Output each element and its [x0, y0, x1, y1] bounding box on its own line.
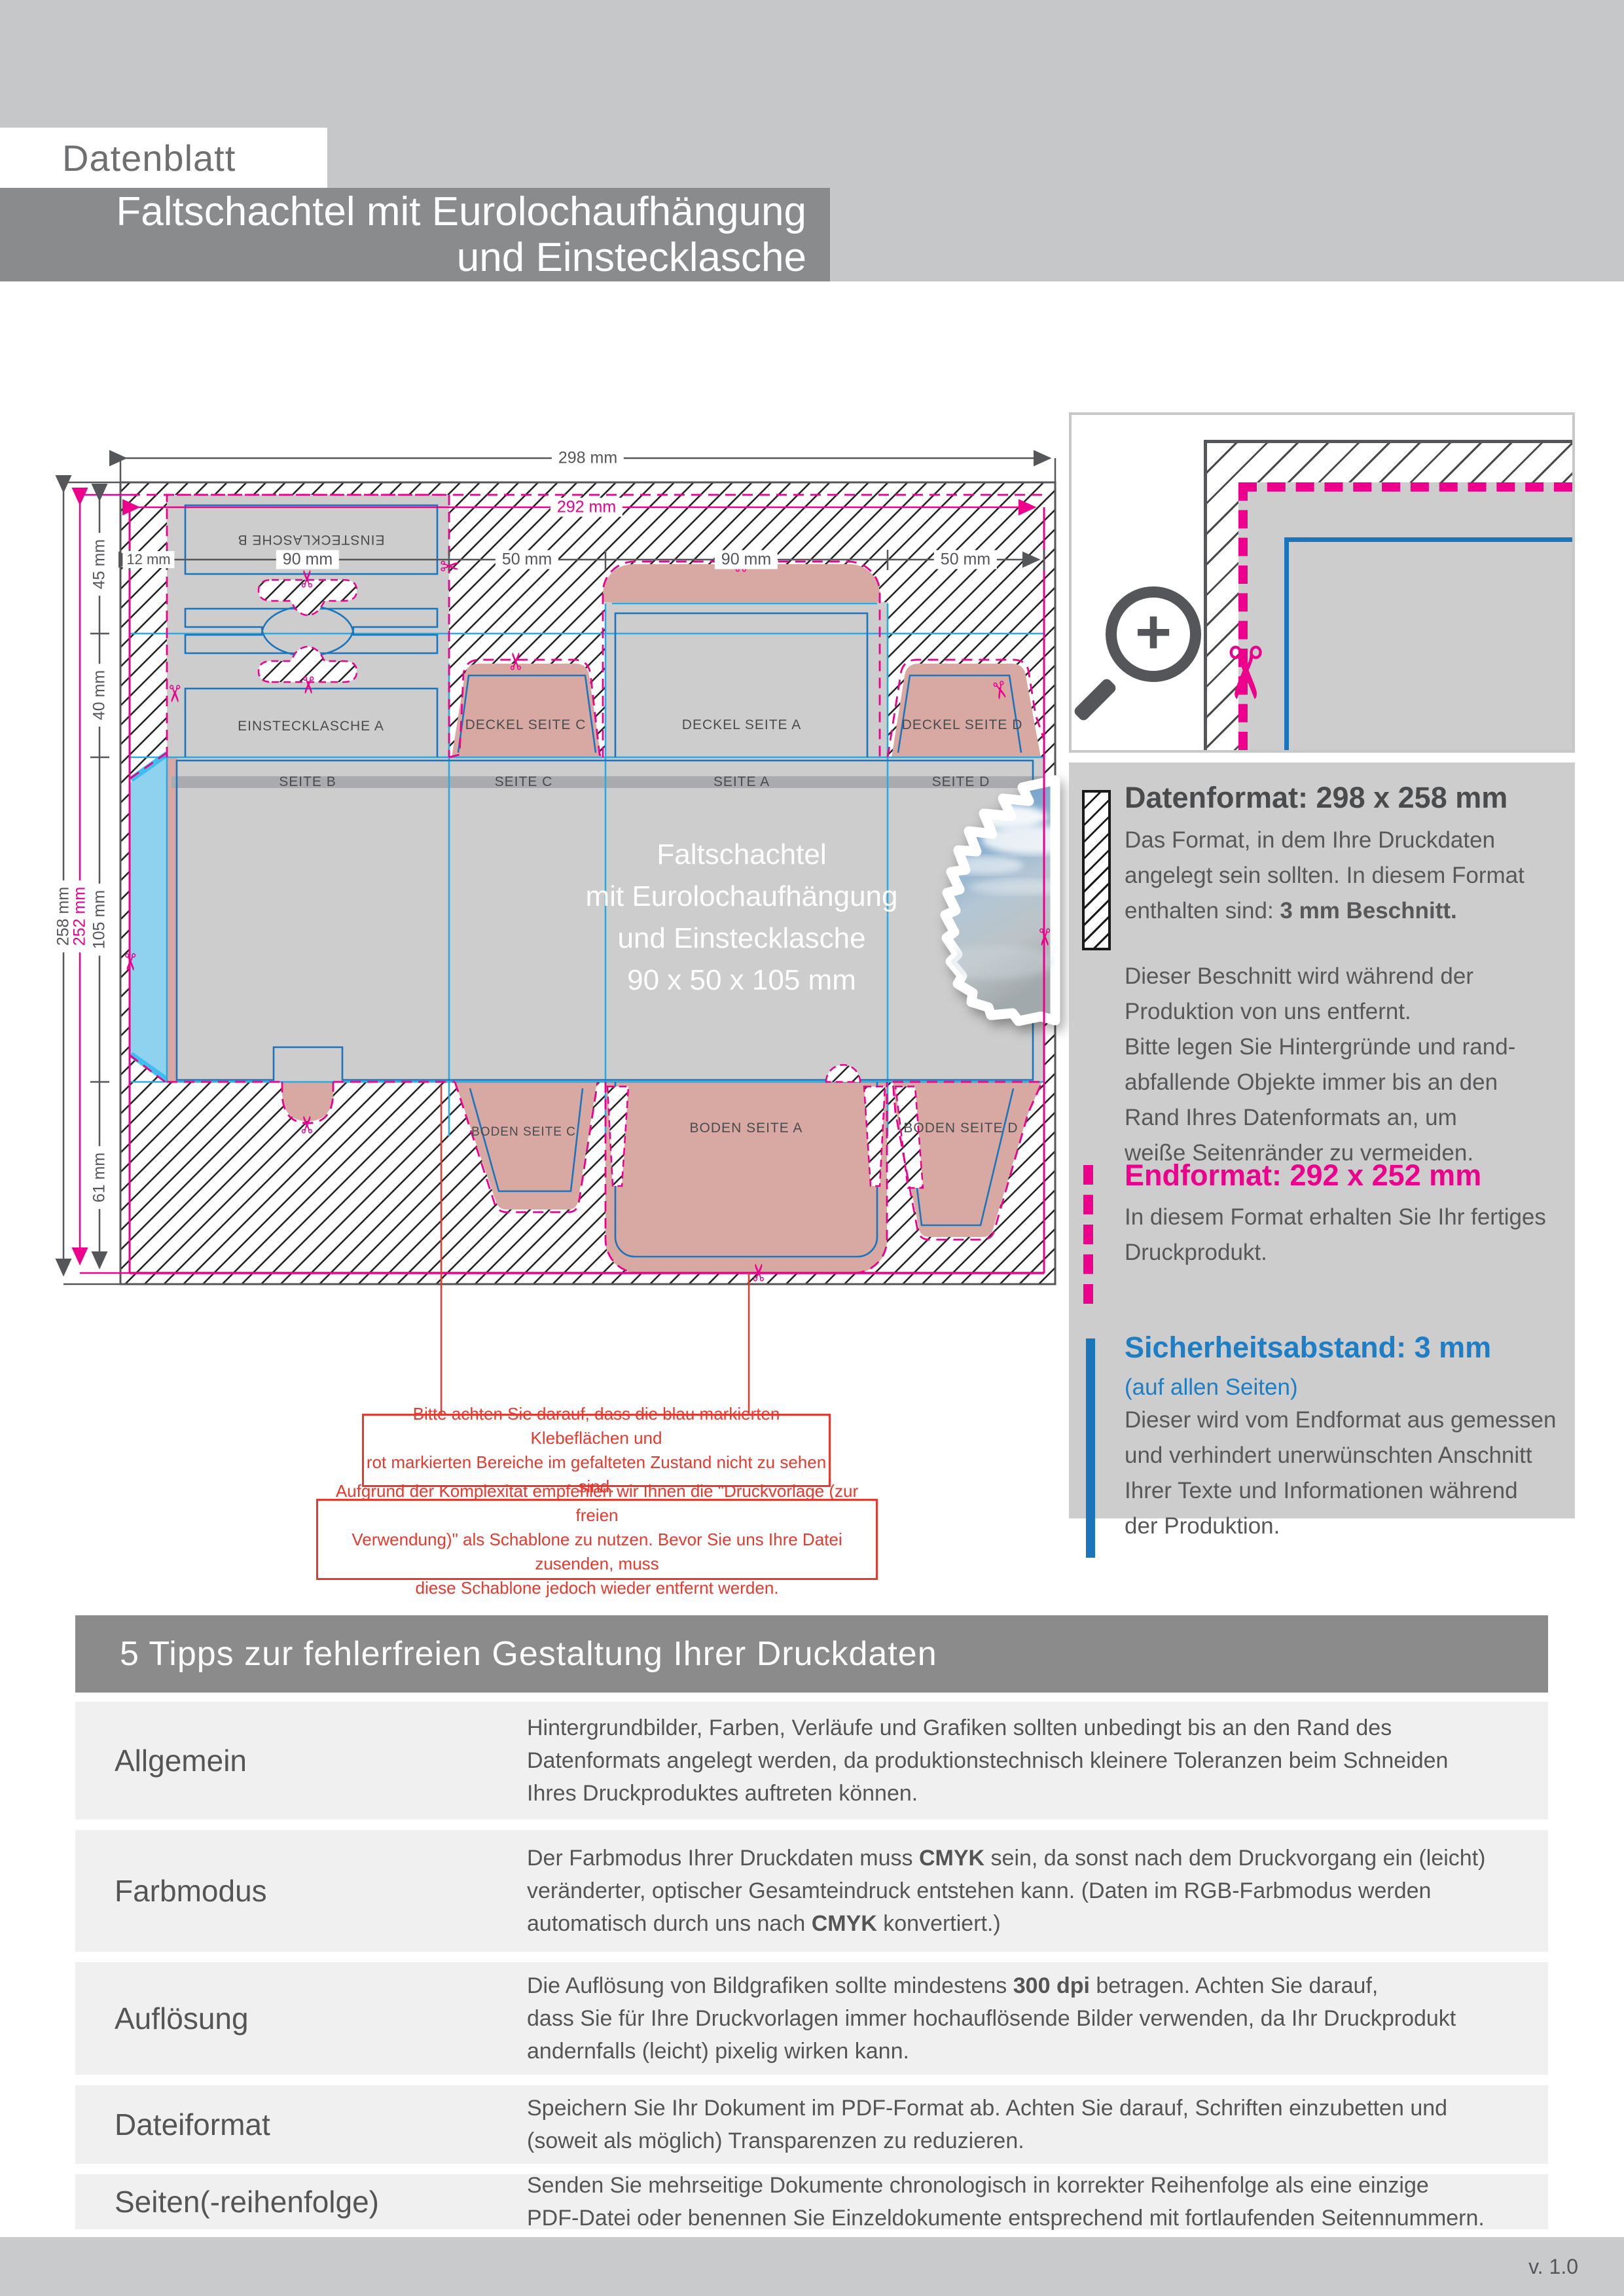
bleed-corner-illustration [1204, 440, 1572, 750]
tip-row-aufloesung: Auflösung Die Auflösung von Bildgrafiken… [75, 1962, 1548, 2075]
tip-text: Speichern Sie Ihr Dokument im PDF-Format… [527, 2092, 1447, 2157]
footer-band: v. 1.0 [0, 2237, 1624, 2296]
panel-boden-a: BODEN SEITE A [690, 1121, 803, 1136]
panel-einstecklasche-a: EINSTECKLASCHE A [238, 719, 384, 734]
scissors-icon: ✂ [296, 675, 319, 695]
tip-row-seitenreihenfolge: Seiten(-reihenfolge) Senden Sie mehrseit… [75, 2174, 1548, 2229]
tip-label: Seiten(-reihenfolge) [115, 2184, 379, 2219]
tip-label: Dateiformat [115, 2107, 270, 2142]
endformat-body: In diesem Format erhalten Sie Ihr fertig… [1125, 1200, 1546, 1270]
datasheet-page: Datenblatt Faltschachtel mit Eurolochauf… [0, 0, 1624, 2296]
scissors-icon: ✂ [296, 1115, 319, 1134]
panel-deckel-d: DECKEL SEITE D [902, 717, 1023, 733]
dim-90a: 90 mm [276, 550, 339, 569]
endformat-corner [1238, 482, 1572, 750]
scissors-icon: ✂ [296, 569, 319, 588]
tips-header: 5 Tipps zur fehlerfreien Gestaltung Ihre… [75, 1634, 937, 1674]
panel-deckel-a: DECKEL SEITE A [682, 717, 801, 733]
dim-50b: 50 mm [934, 550, 997, 569]
tip-text: Der Farbmodus Ihrer Druckdaten muss CMYK… [527, 1842, 1485, 1940]
dim-61: 61 mm [90, 1146, 109, 1209]
note-fold-warning: Bitte achten Sie darauf, dass die blau m… [362, 1414, 831, 1487]
zoom-plus-icon: + [1106, 586, 1201, 682]
dim-105: 105 mm [90, 884, 109, 956]
scissors-icon: ✂ [440, 555, 460, 579]
panel-deckel-c: DECKEL SEITE C [465, 717, 586, 733]
safety-corner [1284, 537, 1572, 750]
panel-boden-c: BODEN SEITE C [471, 1125, 576, 1139]
deckel-a-panel [605, 602, 888, 757]
tip-row-allgemein: Allgemein Hintergrundbilder, Farben, Ver… [75, 1702, 1548, 1820]
tip-row-dateiformat: Dateiformat Speichern Sie Ihr Dokument i… [75, 2085, 1548, 2164]
version-label: v. 1.0 [1528, 2255, 1624, 2279]
zoom-illustration-box: ✂ + [1069, 412, 1575, 753]
tip-label: Allgemein [115, 1743, 247, 1778]
dim-12: 12 mm [122, 551, 174, 568]
deckel-d-flap [892, 664, 1041, 757]
panel-seite-b: SEITE B [279, 774, 336, 790]
scissors-icon: ✂ [505, 651, 528, 671]
deckel-c-flap [452, 664, 601, 757]
scissors-icon: ✂ [1032, 927, 1056, 947]
scissors-icon: ✂ [748, 1263, 771, 1282]
tips-header-bar: 5 Tipps zur fehlerfreien Gestaltung Ihre… [75, 1615, 1548, 1693]
panel-seite-d: SEITE D [932, 774, 990, 790]
hidden-strip [167, 757, 177, 1082]
panel-seite-c: SEITE C [495, 774, 553, 790]
dim-298: 298 mm [552, 449, 624, 468]
tip-label: Farbmodus [115, 1873, 267, 1909]
datenformat-title: Datenformat: 298 x 258 mm [1125, 781, 1507, 815]
scissors-icon: ✂ [1202, 643, 1286, 703]
safety-sub: (auf allen Seiten) [1125, 1370, 1298, 1405]
boden-a-flap [605, 1082, 887, 1273]
endformat-dash-icon [1083, 1165, 1093, 1304]
panel-seite-a: SEITE A [713, 774, 770, 790]
bleed-note: Dieser Beschnitt wird während derProdukt… [1125, 959, 1515, 1171]
tip-label: Auflösung [115, 2001, 249, 2036]
magnifier-handle [1072, 677, 1117, 722]
tip-text: Senden Sie mehrseitige Dokumente chronol… [527, 2169, 1485, 2234]
format-info-panel: Datenformat: 298 x 258 mm Das Format, in… [1069, 762, 1575, 1518]
tip-row-farbmodus: Farbmodus Der Farbmodus Ihrer Druckdaten… [75, 1830, 1548, 1952]
safety-body: Dieser wird vom Endformat aus gemessenun… [1125, 1403, 1556, 1544]
product-description: Faltschachtelmit Eurolochaufhängungund E… [586, 834, 898, 1001]
safety-title: Sicherheitsabstand: 3 mm [1125, 1331, 1491, 1365]
dim-292: 292 mm [550, 498, 623, 517]
dim-90b: 90 mm [715, 550, 778, 569]
endformat-title: Endformat: 292 x 252 mm [1125, 1158, 1481, 1193]
bleed-hatch-icon [1082, 790, 1111, 950]
glue-flap [130, 757, 167, 1082]
dim-40: 40 mm [90, 664, 109, 726]
scissors-icon: ✂ [162, 684, 186, 704]
datenformat-body: Das Format, in dem Ihre Druckdatenangele… [1125, 823, 1525, 929]
safety-bar-icon [1086, 1338, 1095, 1558]
panel-boden-d: BODEN SEITE D [903, 1121, 1018, 1136]
note-template-warning: Aufgrund der Komplexität empfehlen wir I… [316, 1499, 878, 1580]
tip-text: Die Auflösung von Bildgrafiken sollte mi… [527, 1969, 1456, 2068]
dim-252: 252 mm [71, 880, 90, 952]
dim-50a: 50 mm [496, 550, 558, 569]
dim-45: 45 mm [90, 533, 109, 596]
tip-text: Hintergrundbilder, Farben, Verläufe und … [527, 1712, 1448, 1810]
panel-einstecklasche-b: EINSTECKLASCHE B [238, 531, 385, 547]
scissors-icon: ✂ [118, 952, 141, 972]
